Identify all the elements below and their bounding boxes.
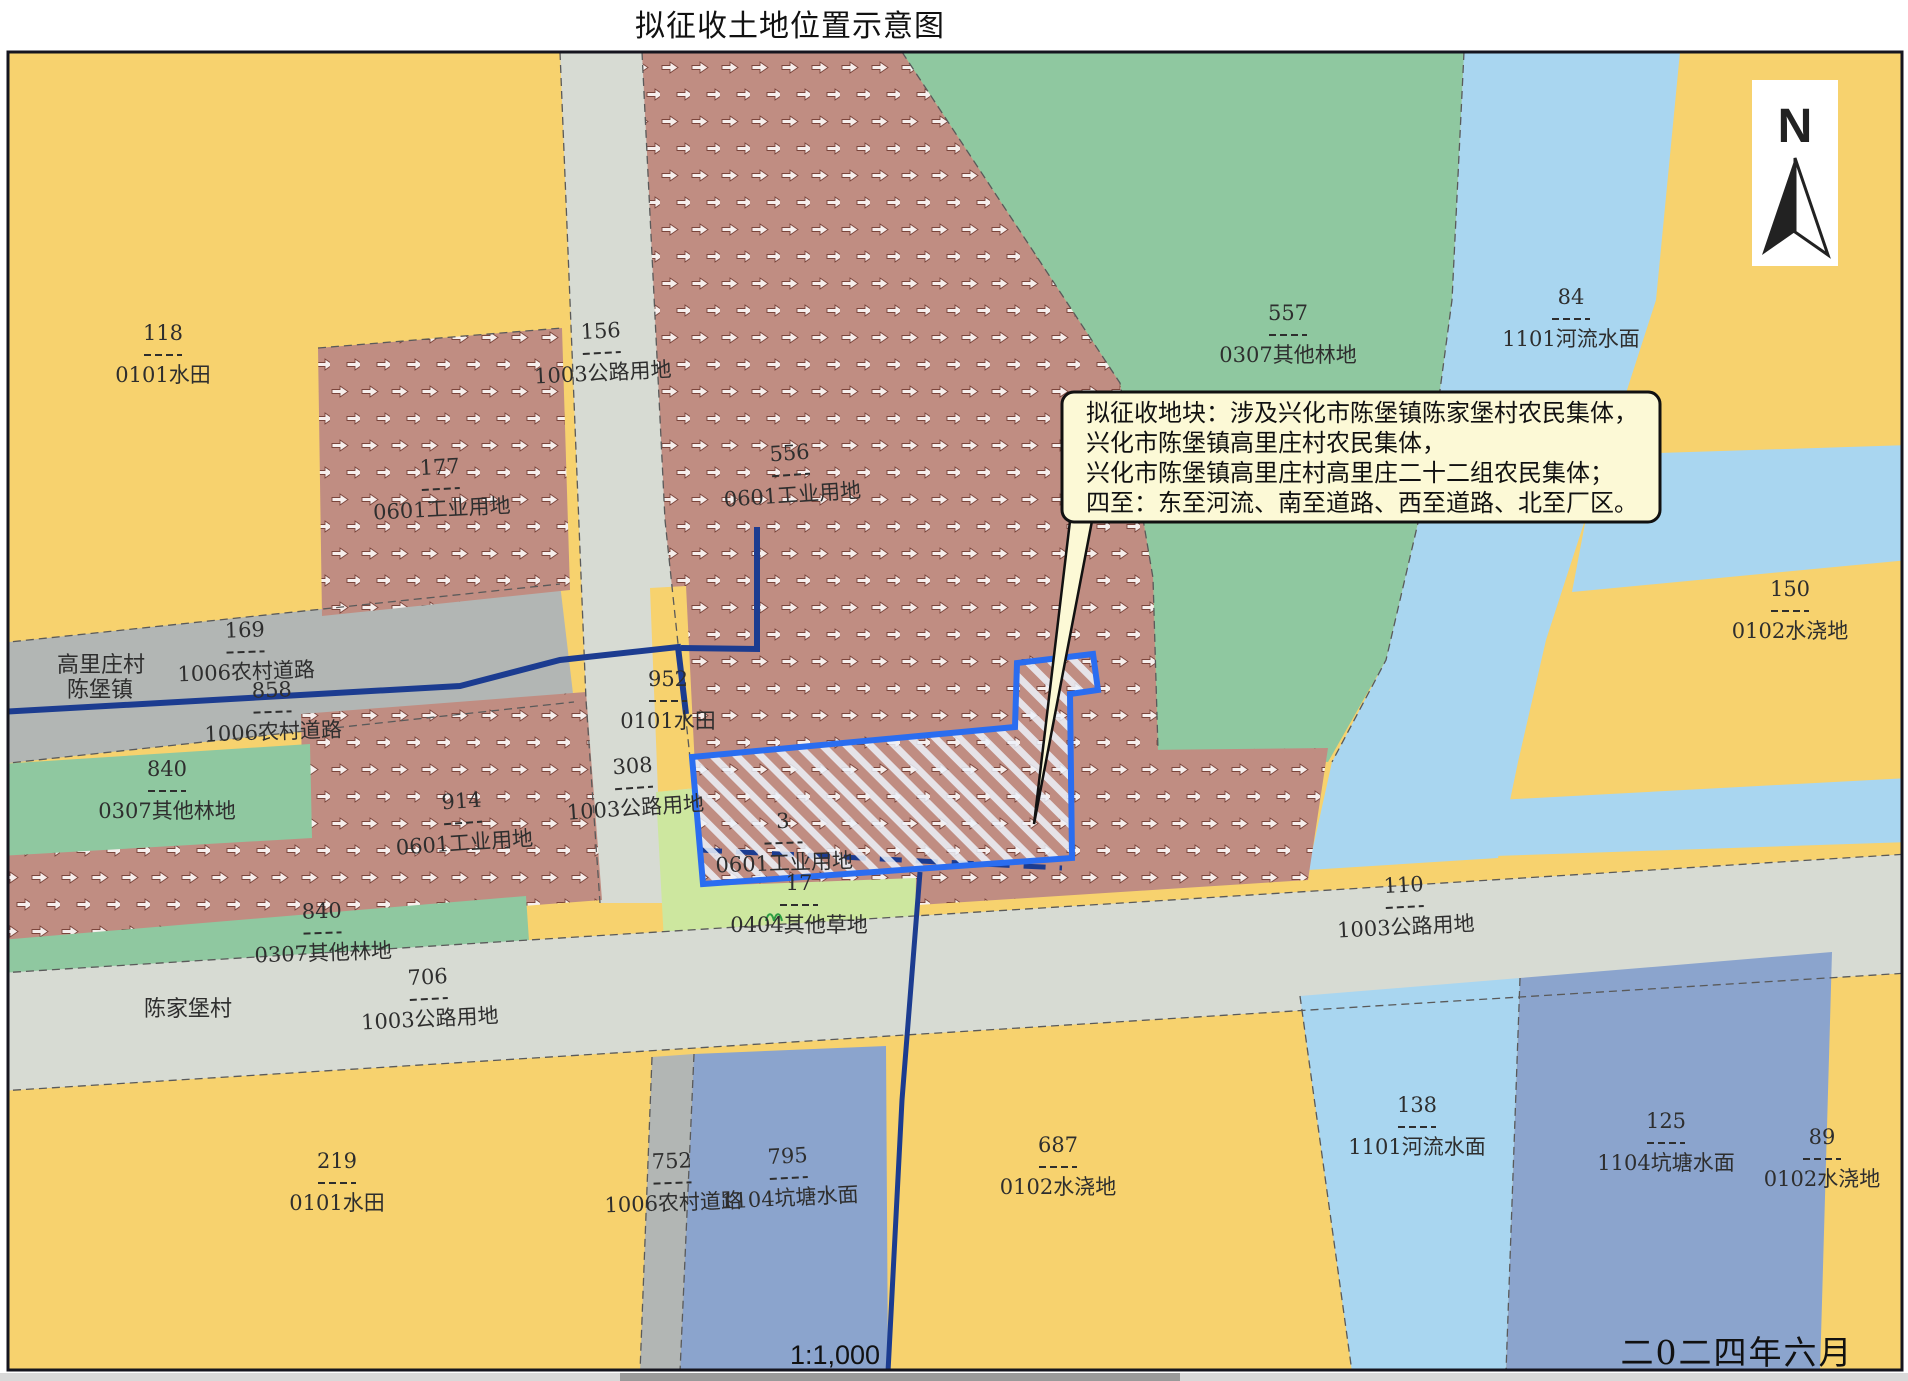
parcel-label-name: 0102水浇地 — [1000, 1175, 1116, 1199]
parcel-label-number: 556 — [769, 440, 811, 467]
parcel-label-number: 138 — [1397, 1093, 1437, 1117]
parcel-label-name: 0307其他林地 — [254, 939, 392, 968]
scale-text: 1:1,000 — [790, 1340, 880, 1370]
parcel-label-number: 687 — [1038, 1133, 1078, 1157]
parcel-label-number: 156 — [580, 318, 621, 344]
parcel-label-name: 0101水田 — [620, 709, 715, 733]
parcel-label-number: 84 — [1558, 285, 1585, 309]
parcel-label-number: 110 — [1383, 872, 1424, 898]
parcel-label-name: 0307其他林地 — [98, 799, 235, 823]
parcel-label-number: 752 — [651, 1148, 692, 1173]
parcel-label-number: 706 — [407, 964, 448, 990]
village-label: 陈家堡村 — [144, 997, 232, 1022]
parcel-label-name: 1101河流水面 — [1502, 327, 1639, 351]
horizontal-scrollbar[interactable] — [0, 1373, 1908, 1381]
parcel-label-number: 858 — [251, 677, 292, 702]
parcel-label-number: 177 — [419, 454, 460, 480]
date-text: 二0二四年六月 — [1621, 1333, 1854, 1372]
map-sheet: 1180101水田1561003公路用地1770601工业用地5560601工业… — [0, 0, 1908, 1381]
parcel-label-name: 1101河流水面 — [1348, 1135, 1485, 1159]
callout-text-line: 四至：东至河流、南至道路、西至道路、北至厂区。 — [1086, 489, 1638, 517]
scrollbar-thumb[interactable] — [620, 1373, 1180, 1381]
north-label: N — [1778, 100, 1813, 153]
parcel-label-name: 0404其他草地 — [730, 913, 867, 937]
parcel-label-name: 0102水浇地 — [1732, 619, 1848, 643]
parcel-label-number: 840 — [301, 898, 342, 923]
map-title: 拟征收土地位置示意图 — [635, 9, 945, 44]
parcel-label-number: 557 — [1268, 301, 1308, 325]
parcel-label-number: 17 — [786, 871, 813, 895]
north-arrow: N — [1752, 80, 1838, 266]
parcel-label-number: 952 — [648, 667, 688, 691]
parcel-label-number: 150 — [1770, 577, 1810, 601]
parcel-label-number: 795 — [767, 1143, 808, 1169]
parcel-label-number: 169 — [224, 617, 265, 642]
parcel-label-number: 308 — [612, 753, 654, 780]
village-label: 陈堡镇 — [67, 678, 133, 703]
parcel-label-number: 3 — [776, 809, 790, 833]
parcel-label-name: 1104坑塘水面 — [1597, 1151, 1734, 1175]
parcel-label-number: 840 — [147, 757, 187, 781]
parcel-label-number: 118 — [143, 321, 183, 345]
parcel-label-name: 0307其他林地 — [1219, 343, 1356, 367]
village-label: 高里庄村 — [57, 653, 145, 678]
parcel-label-number: 914 — [441, 788, 483, 815]
parcel-label-name: 0601工业用地 — [715, 849, 853, 878]
parcel-label-name: 0101水田 — [289, 1191, 384, 1215]
callout-text-line: 兴化市陈堡镇高里庄村高里庄二十二组农民集体； — [1086, 459, 1614, 487]
parcel-label-name: 1006农村道路 — [204, 718, 342, 747]
parcel-label-name: 0102水浇地 — [1764, 1167, 1880, 1191]
callout-text-line: 兴化市陈堡镇高里庄村农民集体， — [1086, 429, 1446, 457]
parcel-label-number: 125 — [1646, 1109, 1686, 1133]
parcel-label-number: 219 — [317, 1149, 357, 1173]
parcel-label-name: 0101水田 — [115, 363, 210, 387]
callout-text-line: 拟征收地块：涉及兴化市陈堡镇陈家堡村农民集体， — [1086, 399, 1638, 427]
parcel-label-name: 1006农村道路 — [177, 658, 315, 687]
parcel-label-number: 89 — [1809, 1125, 1836, 1149]
